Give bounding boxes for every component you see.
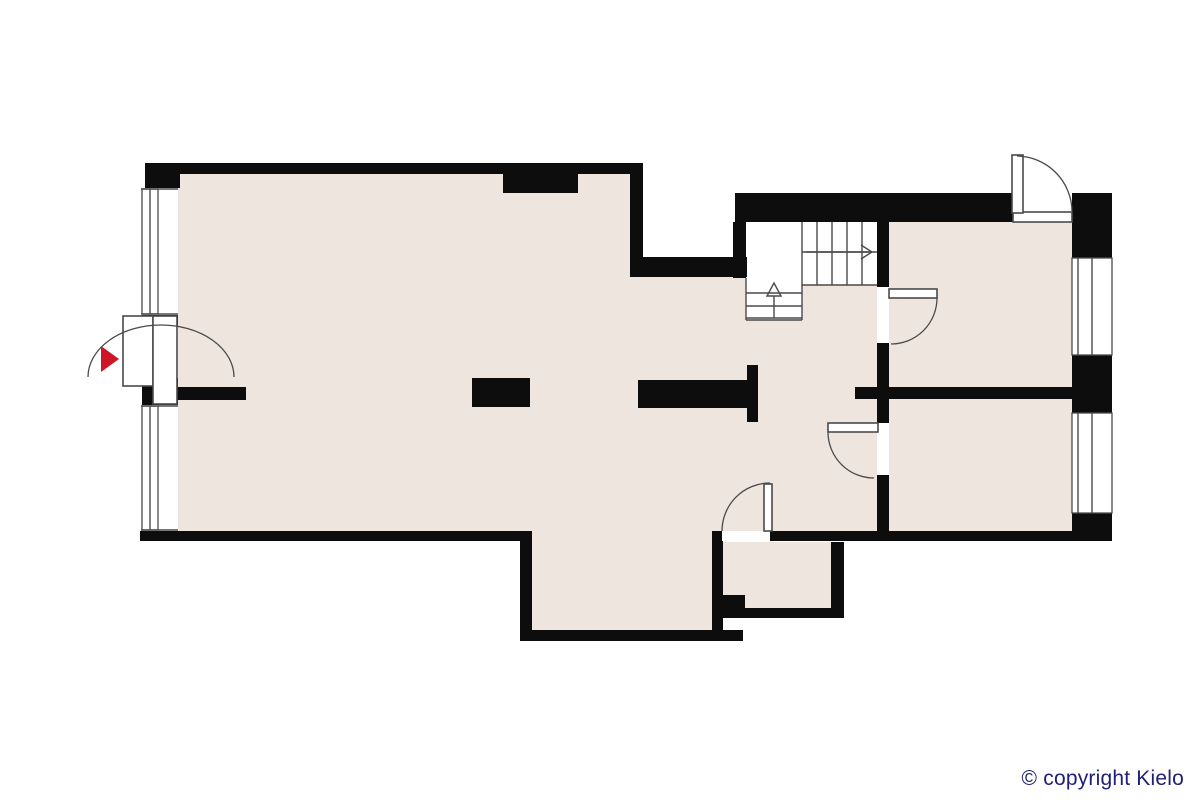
- wall-right-upper: [1072, 193, 1112, 258]
- wall-rooms-divider-horizontal: [855, 387, 1072, 399]
- wall-extension-bottom: [520, 630, 743, 641]
- wall-stub-center-right: [638, 380, 748, 408]
- room-main: [178, 173, 643, 531]
- wall-pier-small-room: [723, 595, 745, 618]
- door-leaf: [828, 423, 878, 432]
- door-threshold: [123, 316, 153, 386]
- wall-step-horizontal: [630, 257, 747, 277]
- door-leaf: [889, 289, 937, 298]
- window-left-upper: [141, 188, 178, 315]
- wall-bottom-left-section: [140, 531, 532, 541]
- wall-stub-center-left: [472, 378, 530, 407]
- door-opening: [877, 287, 889, 343]
- floor-plan: [0, 0, 1200, 800]
- copyright-text: © copyright Kielo: [1022, 767, 1184, 791]
- wall-stairwell-left: [733, 222, 746, 278]
- window-right-upper: [1072, 258, 1112, 355]
- window-right-lower: [1072, 413, 1112, 513]
- room-top-right: [889, 222, 1072, 387]
- door-top-right-exterior: [1012, 155, 1072, 222]
- stairwell-upper: [746, 222, 877, 285]
- door-leaf: [1012, 155, 1023, 213]
- room-bottom-right: [889, 399, 1072, 531]
- door-leaf: [764, 484, 772, 531]
- wall-stub-center-cap: [747, 365, 758, 422]
- room-bottom-extension: [532, 531, 712, 630]
- floor-plan-svg: [0, 0, 1200, 800]
- wall-small-room-right: [831, 542, 844, 618]
- wall-rooms-divider-vertical: [877, 222, 889, 531]
- entrance-arrow-icon: [101, 346, 119, 372]
- wall-corner-pier-top-left: [145, 163, 180, 188]
- wall-extension-right: [712, 541, 723, 637]
- wall-extension-left: [520, 541, 532, 641]
- door-opening: [722, 531, 770, 541]
- wall-bottom-right-section: [712, 531, 1112, 541]
- door-leaf: [153, 316, 177, 404]
- wall-small-room-bottom: [742, 608, 844, 618]
- floor-areas: [178, 173, 1072, 630]
- wall-right-middle: [1072, 355, 1112, 413]
- wall-pier-top-middle: [503, 172, 578, 193]
- window-left-lower: [141, 405, 178, 531]
- wall-stub-entry: [176, 387, 246, 400]
